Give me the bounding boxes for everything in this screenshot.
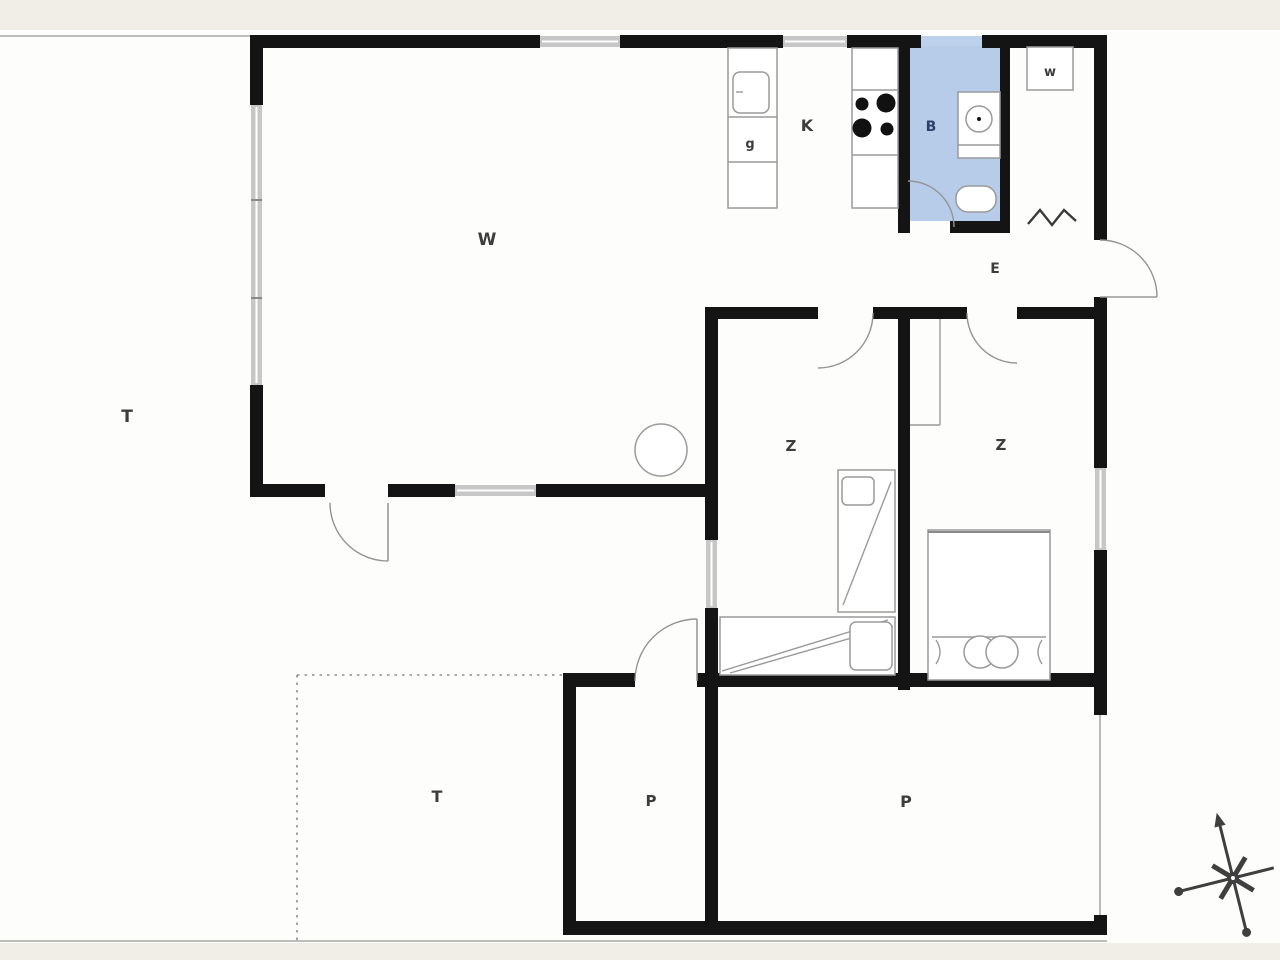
- label-terrace-south: T: [432, 787, 443, 806]
- kitchen-counter-left: [728, 48, 777, 208]
- round-table: [635, 424, 687, 476]
- kitchen-counter-right: [852, 48, 898, 208]
- window-bathroom: [921, 36, 982, 46]
- label-living-room: W: [478, 230, 497, 250]
- toilet: [956, 186, 996, 212]
- label-storage-left: P: [646, 792, 657, 810]
- label-kitchen: K: [801, 116, 814, 135]
- label-kitchen-cabinet: g: [745, 137, 754, 152]
- label-wardrobe: w: [1044, 65, 1056, 80]
- label-bathroom: B: [926, 119, 937, 135]
- label-bedroom-right: Z: [996, 436, 1007, 454]
- label-bedroom-left: Z: [786, 437, 797, 455]
- label-terrace-left: T: [121, 407, 133, 427]
- pillow-right-bed: [986, 636, 1018, 668]
- bed-left: [838, 470, 895, 612]
- bathroom-vanity: [958, 92, 1000, 158]
- pillow-left-bed: [842, 477, 874, 505]
- bed-bench-left: [720, 617, 895, 675]
- label-entrance: E: [990, 261, 1000, 277]
- floorplan-canvas: T W K g B w E Z Z T P P: [0, 0, 1280, 960]
- floorplan-drawing: T W K g B w E Z Z T P P: [0, 0, 1280, 960]
- label-storage-right: P: [900, 792, 912, 811]
- bed-right: [928, 530, 1050, 680]
